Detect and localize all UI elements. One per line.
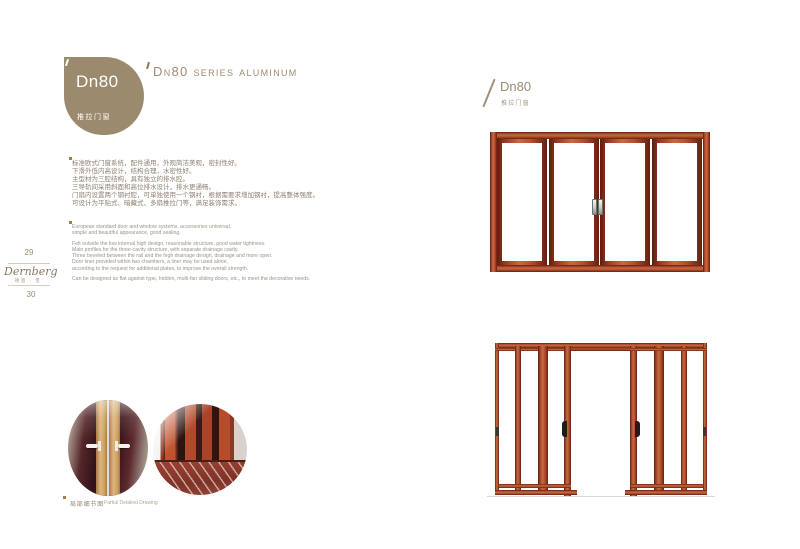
door-handle-icon: [635, 421, 640, 437]
bottom-track: [625, 490, 707, 495]
glass-pane: [502, 143, 542, 261]
title-tick-icon: [146, 62, 150, 69]
right-jamb: [703, 343, 707, 495]
cn-line: 标准欧式门窗系统，配件通用，外观简洁美观，密封性好。: [72, 160, 322, 168]
intro-english: European standard door and window system…: [72, 224, 322, 282]
panel-stile: [515, 346, 521, 493]
brand-rule: [8, 285, 50, 286]
detail-photo-track: [153, 404, 247, 495]
detail-photo-handles: [68, 400, 148, 496]
catalog-page: Dn80 推拉门窗 Dn80 series aluminum 标准欧式门窗系统，…: [0, 0, 800, 549]
panel-stile: [681, 346, 687, 493]
cn-line: 门扇内设置两个钢衬腔，可单独使用一个钢衬，根据需要求增加钢衬，提高整体强度。: [72, 192, 322, 200]
door-handle-icon: [592, 199, 597, 215]
closed-door-drawing: [490, 132, 710, 272]
jamb-latch-icon: [496, 427, 499, 436]
glass-pane: [605, 143, 645, 261]
door-panel: [497, 139, 547, 265]
left-jamb: [495, 343, 499, 495]
brand-logo: Dernberg: [4, 265, 52, 278]
door-panel: [600, 139, 650, 265]
intro-chinese: 标准欧式门窗系统，配件通用，外观简洁美观，密封性好。 下滑外低内高设计，结构合理…: [72, 160, 322, 207]
frame-bottom-rail: [490, 265, 710, 272]
badge-model: Dn80: [76, 72, 119, 92]
caption-chinese: 局部细节图: [70, 499, 104, 508]
en-line: Can be designed as flat against type, hi…: [72, 276, 322, 282]
bottom-track: [495, 490, 577, 495]
panel-bottom-rail: [499, 484, 571, 488]
floor-shadow: [487, 496, 715, 497]
caption-bullet-icon: [63, 496, 66, 499]
cn-line: 下滑外低内高设计，结构合理，水密性好。: [72, 168, 322, 176]
page-number-top: 29: [18, 248, 40, 257]
panel-stile: [654, 346, 664, 495]
center-track: [565, 347, 637, 351]
brand-rule: [8, 263, 50, 264]
series-badge: [64, 57, 144, 135]
right-header-model: Dn80: [500, 79, 531, 94]
cn-line: 可设计为平贴式、暗藏式、多扇推拉门等，满足装饰需求。: [72, 200, 322, 208]
brand-logo-sub: 德恩 · 堡: [4, 278, 52, 284]
panel-top-rail: [495, 348, 571, 351]
page-number-bottom: 30: [20, 290, 42, 299]
cn-line: 三导轨间采用斜面和高位排水设计，排水更通畅。: [72, 184, 322, 192]
badge-type: 推拉门窗: [77, 112, 111, 122]
photo-glare: [68, 400, 148, 496]
panel-top-rail: [630, 348, 707, 351]
slash-icon: [482, 79, 495, 108]
door-panel: [652, 139, 702, 265]
jamb-latch-icon: [703, 427, 706, 436]
open-door-drawing: [495, 343, 707, 501]
right-header-type: 推拉门窗: [501, 98, 530, 107]
photo-glare: [153, 404, 247, 495]
door-handle-icon: [598, 199, 603, 215]
frame-right-stile: [703, 132, 710, 272]
caption-english: Partial Detailed Drawing: [104, 500, 158, 506]
glass-pane: [657, 143, 697, 261]
cn-line: 主型材为三腔结构，具有独立的排水腔。: [72, 176, 322, 184]
panel-stile: [538, 346, 548, 495]
glass-pane: [554, 143, 594, 261]
door-handle-icon: [562, 421, 567, 437]
panel-bottom-rail: [631, 484, 703, 488]
page-title: Dn80 series aluminum: [153, 64, 298, 79]
frame-top-rail: [490, 132, 710, 139]
frame-left-stile: [490, 132, 497, 272]
